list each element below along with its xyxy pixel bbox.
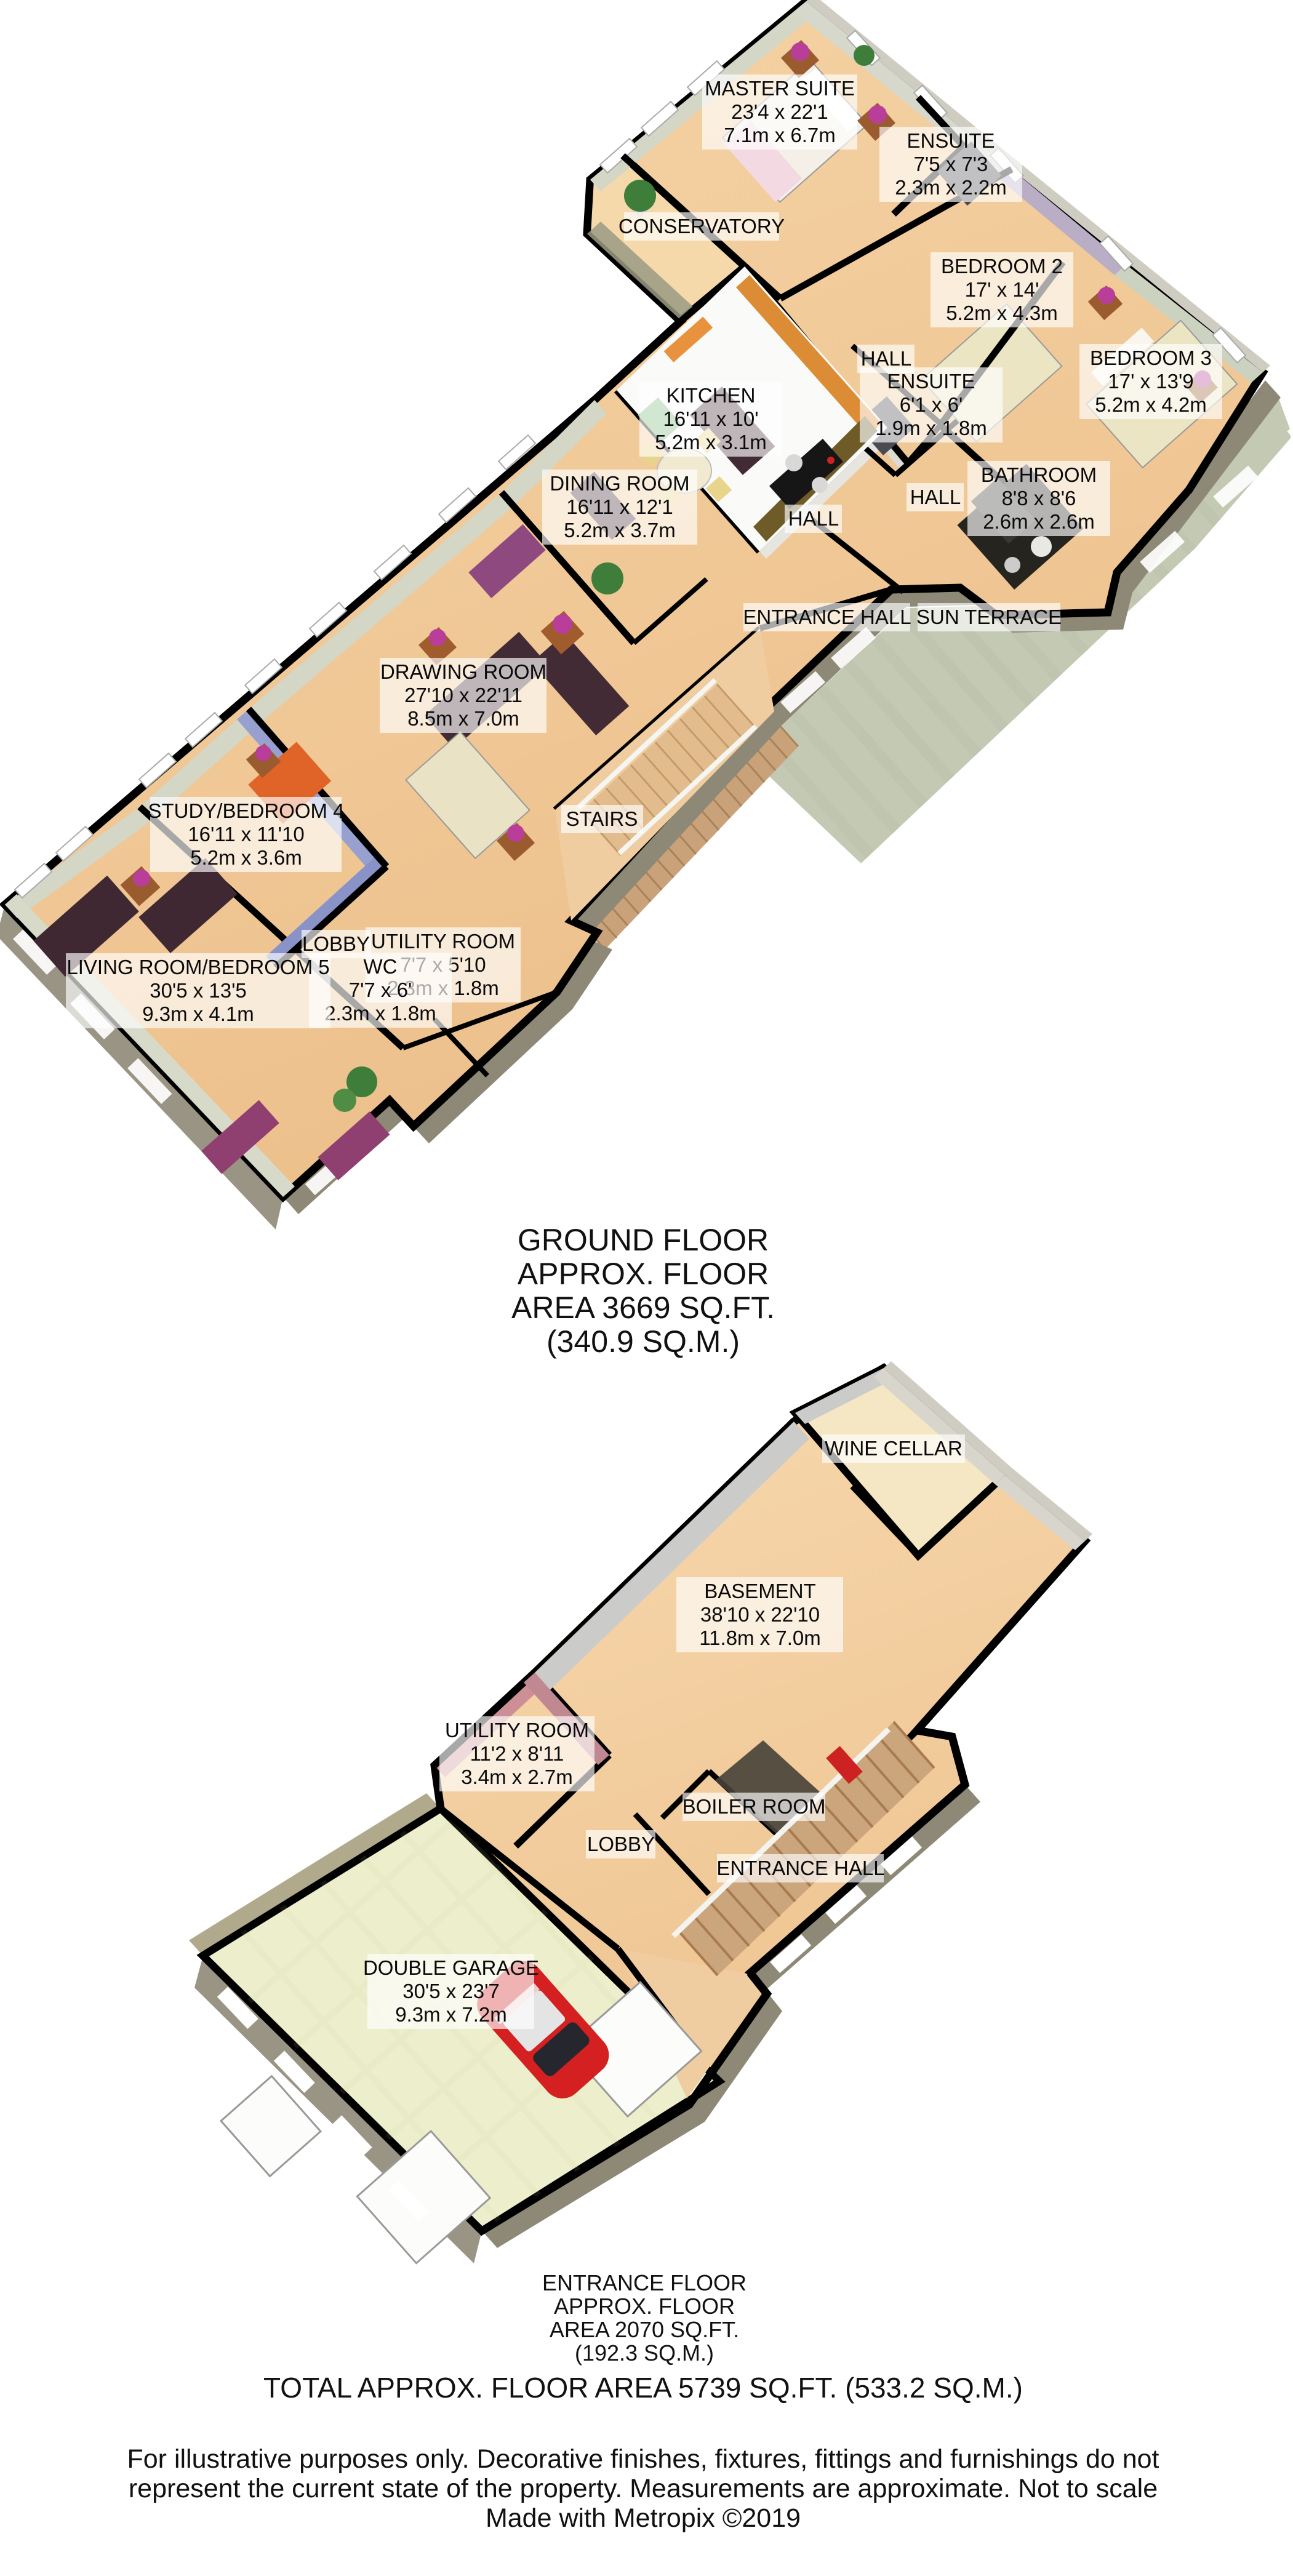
svg-text:11.8m x 7.0m: 11.8m x 7.0m: [699, 1626, 820, 1649]
svg-text:11'2 x 8'11: 11'2 x 8'11: [470, 1742, 564, 1765]
svg-text:STUDY/BEDROOM 4: STUDY/BEDROOM 4: [148, 799, 344, 822]
svg-text:LOBBY: LOBBY: [587, 1833, 655, 1855]
svg-text:27'10 x 22'11: 27'10 x 22'11: [404, 684, 522, 706]
svg-text:2.3m x 1.8m: 2.3m x 1.8m: [324, 1002, 436, 1025]
svg-text:5.2m x 4.3m: 5.2m x 4.3m: [946, 302, 1058, 324]
svg-text:LOBBY: LOBBY: [302, 932, 370, 955]
svg-text:16'11 x 12'1: 16'11 x 12'1: [566, 495, 673, 518]
svg-text:3.4m x 2.7m: 3.4m x 2.7m: [461, 1766, 573, 1788]
svg-text:DINING ROOM: DINING ROOM: [550, 472, 689, 495]
svg-text:(340.9 SQ.M.): (340.9 SQ.M.): [546, 1324, 740, 1359]
svg-text:LIVING ROOM/BEDROOM 5: LIVING ROOM/BEDROOM 5: [66, 956, 329, 978]
svg-text:DRAWING ROOM: DRAWING ROOM: [380, 660, 546, 683]
svg-text:BASEMENT: BASEMENT: [704, 1580, 816, 1602]
svg-text:SUN TERRACE: SUN TERRACE: [916, 606, 1062, 628]
svg-text:represent the current state of: represent the current state of the prope…: [129, 2474, 1158, 2503]
svg-text:2.6m x 2.6m: 2.6m x 2.6m: [983, 510, 1095, 533]
svg-text:7.1m x 6.7m: 7.1m x 6.7m: [724, 124, 836, 146]
svg-text:BATHROOM: BATHROOM: [981, 463, 1097, 486]
svg-text:GROUND FLOOR: GROUND FLOOR: [518, 1223, 769, 1257]
svg-text:16'11 x 11'10: 16'11 x 11'10: [188, 823, 304, 846]
svg-text:6'1 x 6': 6'1 x 6': [900, 393, 963, 416]
svg-text:Made with Metropix ©2019: Made with Metropix ©2019: [486, 2503, 801, 2533]
svg-text:HALL: HALL: [861, 347, 912, 370]
svg-text:HALL: HALL: [788, 507, 839, 530]
svg-text:8'8 x 8'6: 8'8 x 8'6: [1002, 487, 1076, 510]
svg-text:KITCHEN: KITCHEN: [667, 384, 756, 407]
svg-text:AREA 2070 SQ.FT.: AREA 2070 SQ.FT.: [550, 2317, 739, 2342]
svg-text:17' x 14': 17' x 14': [965, 278, 1039, 301]
svg-text:UTILITY ROOM: UTILITY ROOM: [445, 1719, 589, 1742]
svg-text:ENTRANCE HALL: ENTRANCE HALL: [716, 1857, 884, 1879]
svg-text:38'10 x 22'10: 38'10 x 22'10: [700, 1603, 820, 1626]
svg-text:STAIRS: STAIRS: [566, 807, 638, 830]
svg-text:CONSERVATORY: CONSERVATORY: [618, 215, 785, 238]
svg-text:ENTRANCE HALL: ENTRANCE HALL: [743, 606, 911, 628]
svg-text:16'11 x 10': 16'11 x 10': [663, 407, 758, 430]
svg-text:30'5 x 13'5: 30'5 x 13'5: [150, 979, 247, 1002]
svg-text:9.3m x 7.2m: 9.3m x 7.2m: [395, 2003, 507, 2026]
svg-text:5.2m x 3.7m: 5.2m x 3.7m: [564, 519, 676, 542]
svg-text:30'5 x 23'7: 30'5 x 23'7: [402, 1980, 500, 2002]
svg-text:5.2m x 3.6m: 5.2m x 3.6m: [190, 846, 302, 869]
svg-text:BEDROOM 2: BEDROOM 2: [941, 255, 1063, 278]
svg-text:23'4 x 22'1: 23'4 x 22'1: [731, 100, 828, 123]
svg-text:ENSUITE: ENSUITE: [887, 370, 975, 393]
svg-text:2.3m x 2.2m: 2.3m x 2.2m: [895, 176, 1007, 199]
svg-text:5.2m x 3.1m: 5.2m x 3.1m: [655, 431, 767, 454]
svg-text:9.3m x 4.1m: 9.3m x 4.1m: [142, 1002, 254, 1025]
svg-text:7'5 x 7'3: 7'5 x 7'3: [914, 153, 988, 175]
svg-text:UTILITY ROOM: UTILITY ROOM: [371, 930, 515, 953]
svg-text:APPROX. FLOOR: APPROX. FLOOR: [554, 2294, 735, 2319]
svg-text:For illustrative purposes only: For illustrative purposes only. Decorati…: [127, 2444, 1159, 2474]
svg-text:17' x 13'9: 17' x 13'9: [1108, 370, 1193, 393]
svg-text:APPROX. FLOOR: APPROX. FLOOR: [518, 1257, 769, 1291]
svg-text:HALL: HALL: [910, 486, 961, 508]
svg-text:ENTRANCE FLOOR: ENTRANCE FLOOR: [542, 2270, 747, 2295]
svg-text:8.5m x 7.0m: 8.5m x 7.0m: [407, 707, 519, 730]
svg-text:MASTER SUITE: MASTER SUITE: [705, 77, 855, 100]
svg-text:5.2m x 4.2m: 5.2m x 4.2m: [1095, 393, 1207, 416]
svg-text:(192.3 SQ.M.): (192.3 SQ.M.): [575, 2340, 714, 2366]
svg-text:ENSUITE: ENSUITE: [907, 129, 995, 152]
svg-text:WINE CELLAR: WINE CELLAR: [825, 1437, 963, 1460]
svg-text:TOTAL APPROX. FLOOR AREA 5739: TOTAL APPROX. FLOOR AREA 5739 SQ.FT. (53…: [263, 2372, 1023, 2404]
svg-text:1.9m x 1.8m: 1.9m x 1.8m: [875, 417, 987, 439]
svg-text:BOILER ROOM: BOILER ROOM: [683, 1795, 826, 1818]
svg-text:7'7 x 6': 7'7 x 6': [349, 978, 412, 1001]
svg-text:WC: WC: [364, 955, 398, 978]
svg-text:DOUBLE GARAGE: DOUBLE GARAGE: [363, 1956, 539, 1979]
svg-text:BEDROOM 3: BEDROOM 3: [1090, 346, 1212, 369]
svg-text:AREA 3669 SQ.FT.: AREA 3669 SQ.FT.: [511, 1290, 775, 1325]
